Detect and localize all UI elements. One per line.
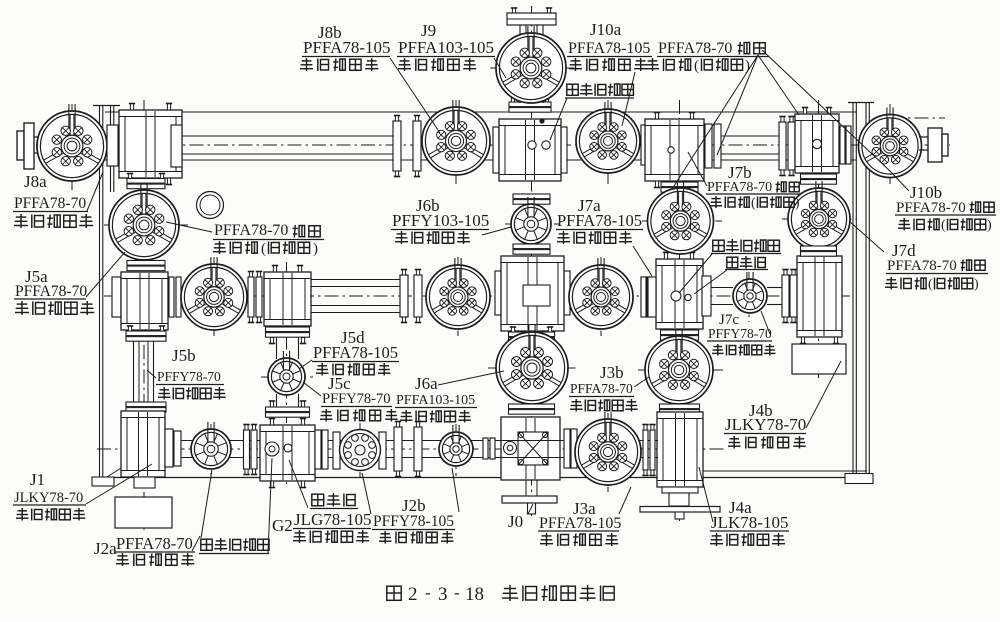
svg-text:J6a: J6a [415, 374, 438, 393]
svg-text:J10a: J10a [590, 20, 622, 39]
svg-text:J8a: J8a [24, 172, 47, 191]
svg-text:JLKY78-70: JLKY78-70 [725, 415, 806, 434]
svg-text:PFFA78-70: PFFA78-70 [658, 40, 732, 57]
svg-text:PFFY103-105: PFFY103-105 [392, 211, 489, 230]
svg-text:J5b: J5b [172, 346, 196, 365]
svg-text:PFFA78-105: PFFA78-105 [539, 515, 621, 532]
svg-text:(: ( [941, 218, 946, 233]
svg-text:(: ( [694, 58, 699, 74]
svg-text:(: ( [261, 241, 266, 257]
svg-text:PFFA78-105: PFFA78-105 [568, 40, 650, 57]
svg-text:): ) [974, 277, 979, 292]
svg-text:PFFA78-70: PFFA78-70 [15, 283, 87, 300]
svg-text:PFFY78-70: PFFY78-70 [708, 326, 772, 341]
svg-text:PFFY78-70: PFFY78-70 [322, 391, 391, 407]
svg-text:J0: J0 [508, 512, 523, 531]
svg-text:): ) [795, 195, 800, 210]
svg-text:PFFA78-105: PFFA78-105 [303, 38, 391, 57]
svg-text:JLK78-105: JLK78-105 [711, 513, 788, 532]
svg-text:PFFY78-70: PFFY78-70 [157, 369, 221, 384]
svg-text:PFFA78-70: PFFA78-70 [14, 195, 86, 212]
svg-text:PFFA78-70: PFFA78-70 [570, 381, 633, 396]
svg-text:): ) [313, 241, 318, 257]
svg-text:PFFY78-105: PFFY78-105 [373, 513, 454, 530]
svg-text:JLG78-105: JLG78-105 [294, 510, 371, 529]
svg-text:3: 3 [438, 584, 448, 605]
svg-text:PFFA78-105: PFFA78-105 [557, 211, 642, 230]
svg-text:PFFA78-70: PFFA78-70 [887, 258, 957, 274]
svg-text:PFFA78-105: PFFA78-105 [313, 343, 398, 362]
svg-text:(: ( [751, 195, 756, 210]
svg-text:G2: G2 [272, 516, 293, 535]
svg-text:PFFA103-105: PFFA103-105 [398, 38, 494, 57]
svg-text:(: ( [928, 277, 933, 292]
svg-text:-: - [425, 583, 431, 602]
svg-text:PFFA78-70: PFFA78-70 [116, 534, 193, 553]
svg-text:2: 2 [408, 584, 418, 605]
svg-text:PFFA78-70: PFFA78-70 [214, 222, 288, 239]
svg-text:PFFA78-70: PFFA78-70 [896, 200, 966, 216]
svg-text:J3b: J3b [600, 363, 624, 382]
svg-text:18: 18 [465, 584, 484, 605]
svg-text:-: - [454, 583, 460, 602]
svg-text:JLKY78-70: JLKY78-70 [14, 490, 83, 506]
svg-text:J2a: J2a [94, 539, 117, 558]
svg-text:J1: J1 [30, 470, 45, 489]
svg-text:PFFA103-105: PFFA103-105 [396, 393, 475, 408]
svg-text:PFFA78-70: PFFA78-70 [707, 180, 772, 195]
svg-text:): ) [987, 218, 992, 233]
